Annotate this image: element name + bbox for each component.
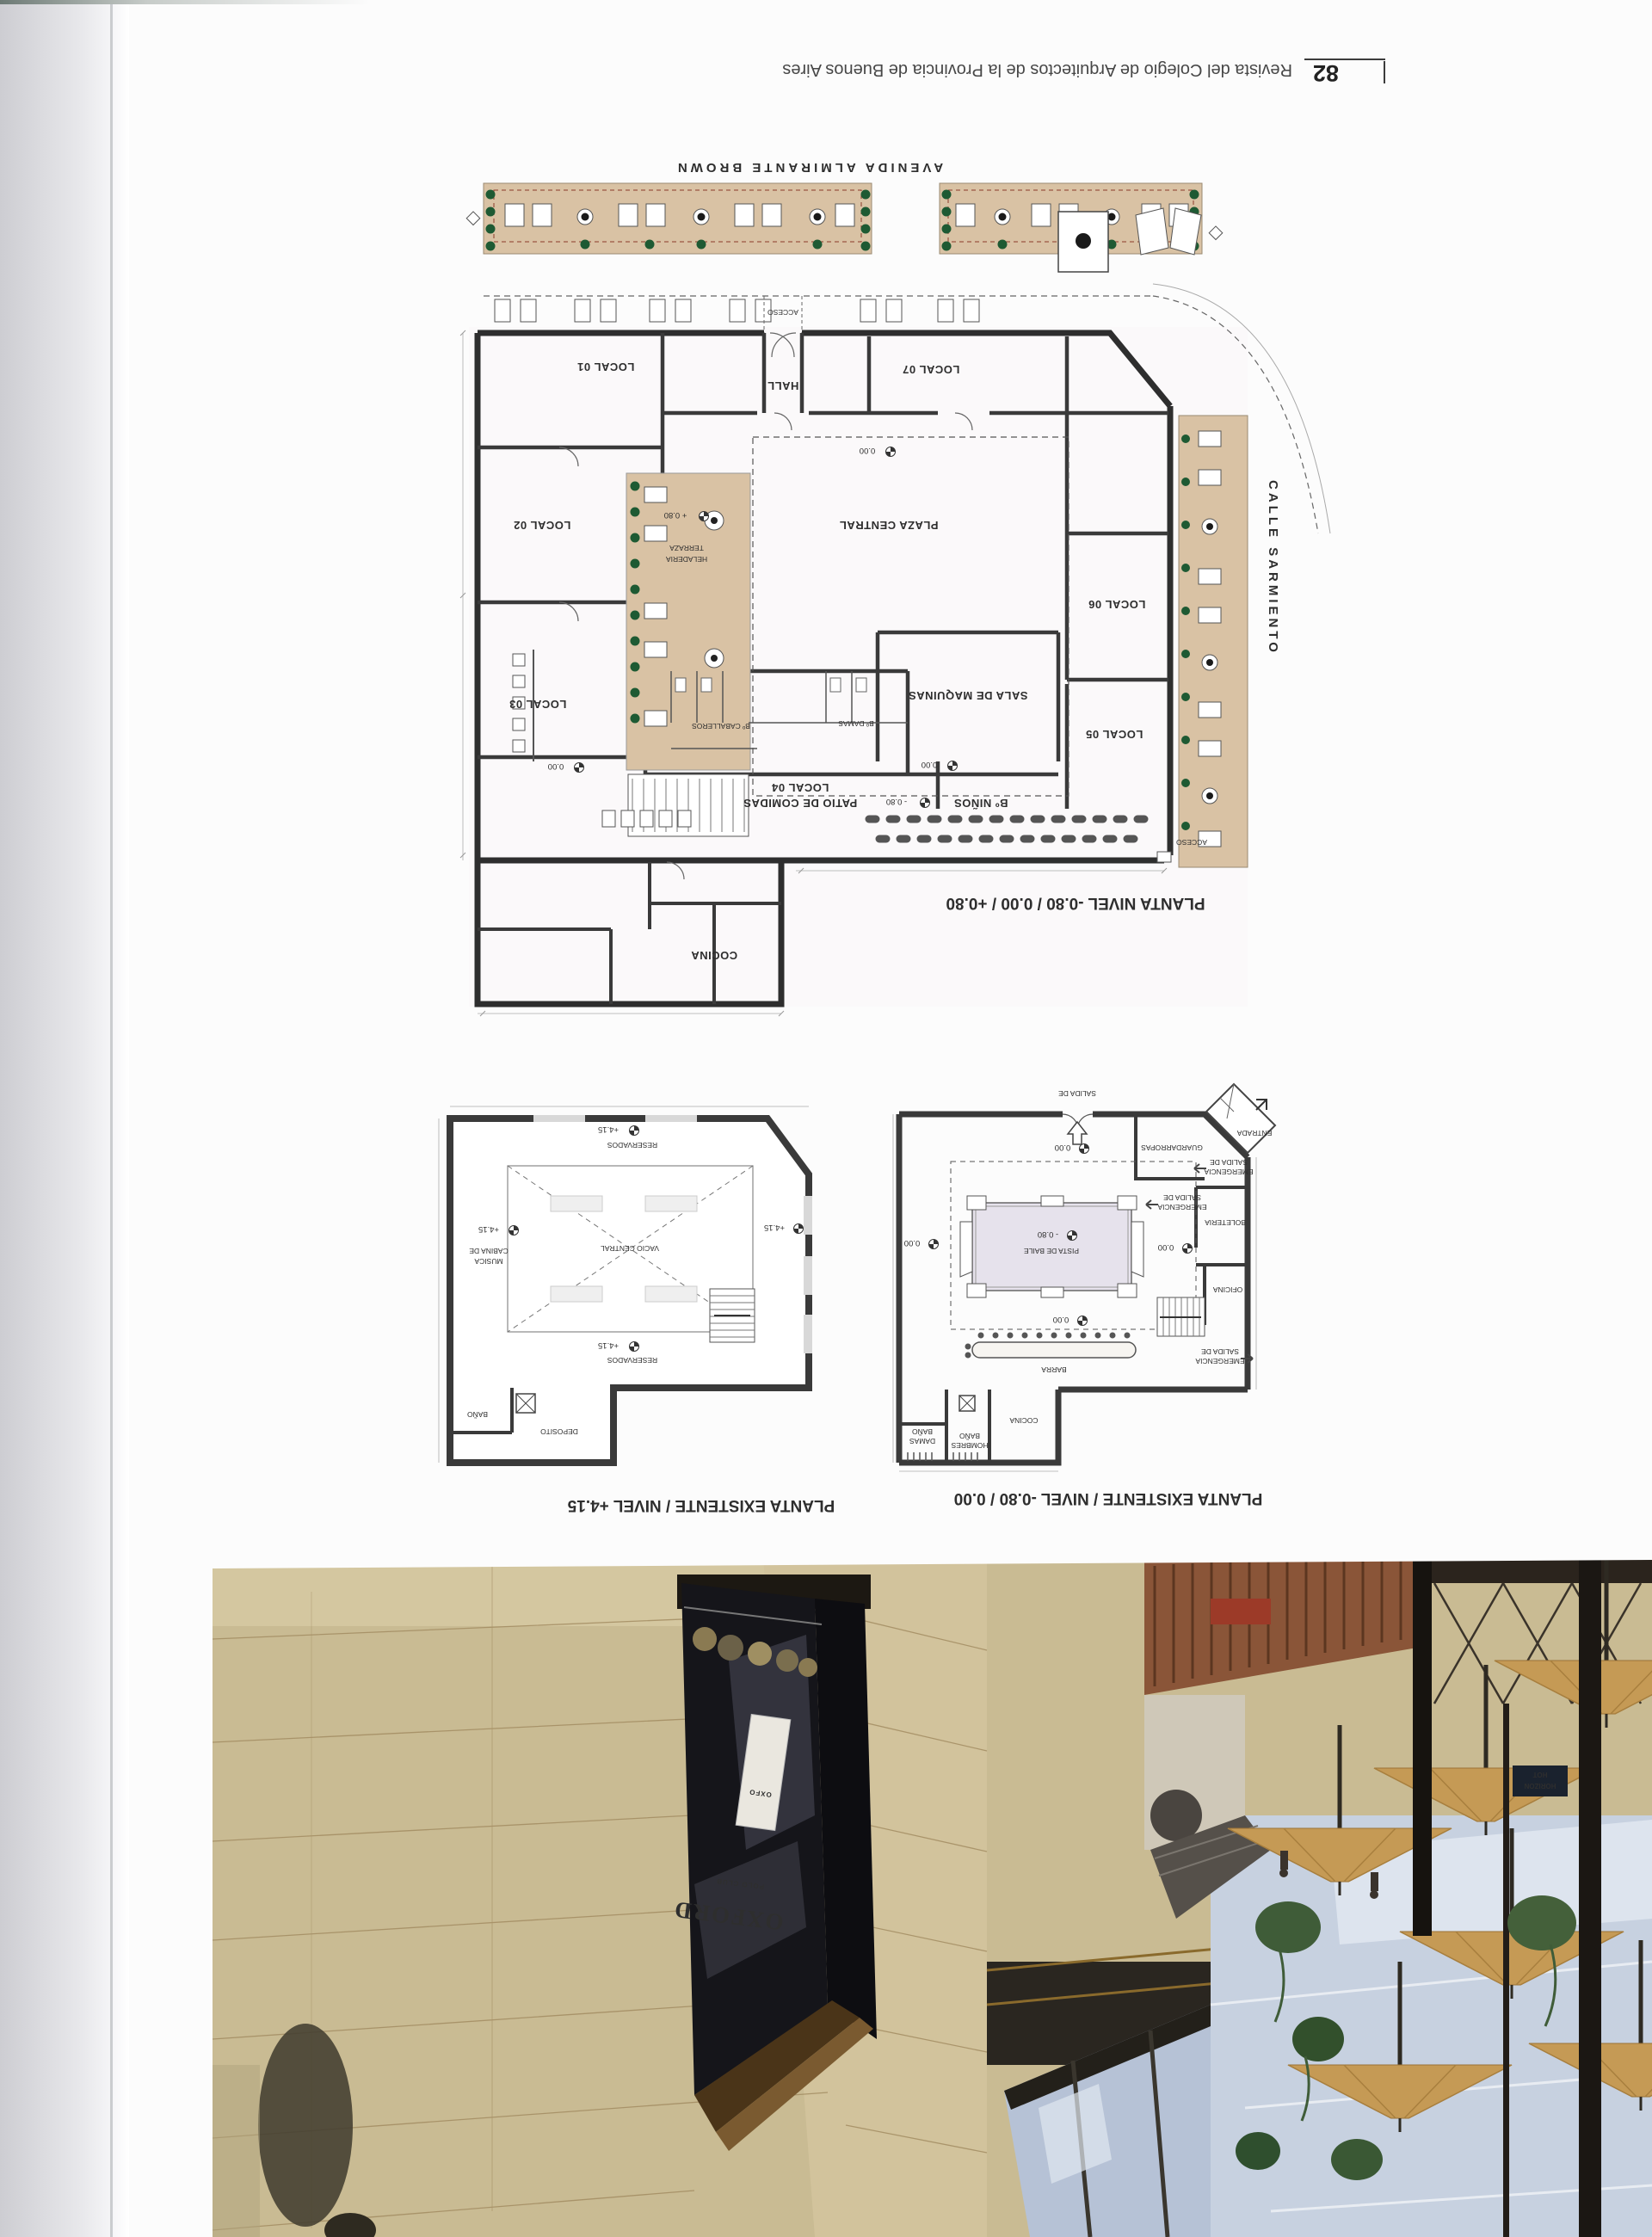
patio-bench-left	[602, 810, 691, 827]
room-label-local05: LOCAL 05	[1086, 728, 1143, 741]
street-label-sarmiento: CALLE SARMIENTO	[1266, 480, 1280, 656]
lower-window	[987, 1946, 1245, 2237]
bano-hombres-1: BAÑO	[959, 1432, 980, 1440]
pista-de-baile	[960, 1196, 1143, 1297]
room-label-local04: LOCAL 04	[771, 781, 829, 794]
post	[1579, 1557, 1601, 2237]
guardarropas-label: GUARDARROPAS	[1141, 1143, 1203, 1152]
page-number-rule: 82	[1304, 59, 1385, 84]
reservados-top: RESERVADOS	[607, 1141, 658, 1149]
salida-de-label: SALIDA DE	[1058, 1089, 1096, 1098]
stairs	[710, 1289, 755, 1342]
terrace-deck-1	[484, 183, 872, 254]
level-marker	[1068, 1231, 1077, 1241]
acceso-right-label: ACCESO	[1176, 838, 1207, 847]
em-box	[1157, 852, 1171, 862]
roof-beam	[1417, 1557, 1652, 1583]
level-marker	[575, 763, 584, 773]
page-number: 82	[1313, 61, 1339, 84]
person-silhouette	[1370, 1872, 1378, 1899]
barra-label: BARRA	[1041, 1365, 1067, 1374]
bano-damas-1: BAÑO	[912, 1427, 933, 1436]
pista-level: - 0.80	[1038, 1229, 1058, 1239]
plan-ground: ENTRADA SALIDA DE EMERGENCIA SALIDA DE G…	[886, 1075, 1291, 1510]
room-label-bano-ninos: Bº NIÑOS	[954, 797, 1008, 810]
red-banner	[1211, 1599, 1271, 1624]
page-footer: 82 Revista del Colegio de Arquitectos de…	[817, 59, 1385, 102]
cocina-label: COCINA	[1009, 1416, 1038, 1425]
up-arrow	[1068, 1122, 1087, 1144]
level-right: +4.15	[764, 1223, 785, 1232]
room-label-local02: LOCAL 02	[514, 519, 571, 532]
plan-main-caption: PLANTA NIVEL -0.80 / 0.00 / +0.80	[946, 894, 1205, 912]
level-000-left: 0.00	[548, 761, 564, 771]
page-edge-line	[110, 0, 113, 2237]
room-label-local07: LOCAL 07	[903, 363, 960, 376]
salida-emerg-mid-2: EMERGENCIA	[1157, 1203, 1206, 1211]
level-right: 0.00	[1158, 1242, 1174, 1252]
scanned-magazine-page: 82 Revista del Colegio de Arquitectos de…	[0, 0, 1652, 2237]
level-left: +4.15	[478, 1224, 499, 1234]
wall-shade-left	[213, 2065, 260, 2237]
level-marker	[630, 1342, 639, 1352]
magazine-title: Revista del Colegio de Arquitectos de la…	[782, 59, 1292, 81]
room-label-local01: LOCAL 01	[577, 361, 635, 373]
level-bottom: 0.00	[1053, 1315, 1069, 1324]
plan-upper: +4.15 RESERVADOS +4.15 CABINA DE MUSICA …	[430, 1093, 826, 1519]
plan-main: AVENIDA ALMIRANTE BROWN	[456, 155, 1334, 1020]
cabina-1: CABINA DE	[469, 1247, 509, 1255]
reservados-bottom: RESERVADOS	[607, 1356, 658, 1365]
shaft-box	[516, 1394, 535, 1413]
room-label-cocina: COCINA	[691, 949, 737, 962]
entrada-vestibule	[1206, 1084, 1275, 1153]
scan-top-edge	[0, 0, 370, 4]
room-label-local06: LOCAL 06	[1088, 598, 1146, 611]
level-000-hall: 0.00	[860, 446, 876, 455]
level-marker	[509, 1226, 519, 1236]
bano-hombres-2: HOMBRES	[951, 1441, 988, 1450]
level-marker	[886, 447, 896, 457]
room-label-bano-caballeros: Bº CABALLEROS	[692, 722, 750, 730]
cabina-2: MUSICA	[474, 1257, 502, 1266]
wall-shadow	[258, 2024, 353, 2227]
level-top: 0.00	[1055, 1143, 1071, 1152]
acceso-top-label: ACCESO	[767, 308, 798, 317]
hotel-sign-line1: HORIZON	[1524, 1782, 1556, 1790]
level-marker	[929, 1240, 939, 1249]
room-label-bano-damas: Bº DAMAS	[838, 719, 874, 728]
deposito-label: DEPOSITO	[540, 1427, 578, 1436]
entrada-label: ENTRADA	[1236, 1129, 1272, 1137]
level-marker	[1078, 1316, 1088, 1326]
level-plus080: + 0.80	[664, 510, 687, 520]
salida-emerg-tr-2: EMERGENCIA	[1204, 1168, 1253, 1176]
barra	[968, 1335, 1136, 1358]
salida-emerg-br-1: SALIDA DE	[1201, 1347, 1239, 1356]
level-000-right: 0.00	[922, 760, 938, 769]
hotel-sign: HORIZON HOT	[1513, 1766, 1568, 1796]
bano-label: BAÑO	[467, 1410, 488, 1419]
room-label-terraza2: HELADERIA	[666, 555, 708, 564]
level-minus080: - 0.80	[886, 797, 907, 806]
terrace-sarmiento	[1179, 416, 1248, 867]
level-marker	[630, 1126, 639, 1136]
hotel-sign-line2: HOT	[1532, 1771, 1547, 1778]
bano-damas-2: DAMAS	[909, 1437, 936, 1445]
salida-emerg-mid-1: SALIDA DE	[1163, 1193, 1201, 1202]
person-silhouette	[1279, 1851, 1288, 1877]
level-marker	[700, 512, 709, 521]
diamond-marker-left	[466, 212, 480, 225]
salida-emerg-br-2: EMERGENCIA	[1195, 1357, 1244, 1365]
page-number-tick	[1384, 61, 1385, 83]
post-thin	[1503, 1704, 1509, 2237]
level-marker	[1080, 1144, 1089, 1154]
room-label-local03: LOCAL 03	[509, 698, 567, 711]
stairs	[1157, 1297, 1205, 1336]
photo-storefront: OXFO POLO CLUB OXFORD	[213, 1557, 1652, 2237]
level-marker	[794, 1224, 804, 1234]
level-top: +4.15	[598, 1125, 619, 1134]
boleteria-label: BOLETERIA	[1205, 1218, 1246, 1227]
plan-ground-caption: PLANTA EXISTENTE / NIVEL -0.80 / 0.00	[954, 1489, 1263, 1507]
post	[1413, 1557, 1432, 1936]
level-marker	[948, 761, 958, 771]
room-label-hall: HALL	[767, 379, 799, 392]
exit-arrow-mid	[1146, 1200, 1158, 1209]
level-marker	[1183, 1244, 1193, 1254]
oficina-label: OFICINA	[1212, 1285, 1242, 1294]
shaft-box	[959, 1396, 975, 1411]
level-bottom: +4.15	[598, 1340, 619, 1350]
diamond-marker-right	[1209, 226, 1223, 240]
annex-walls	[899, 1390, 989, 1463]
level-marker	[921, 798, 930, 808]
salida-emerg-tr-1: SALIDA DE	[1210, 1158, 1248, 1167]
street-label-avenida: AVENIDA ALMIRANTE BROWN	[675, 160, 943, 175]
street-tables	[495, 299, 979, 322]
room-label-patio-comidas: PATIO DE COMIDAS	[743, 797, 857, 810]
room-label-terraza1: TERRAZA	[669, 544, 704, 552]
pista-label: PISTA DE BAILE	[1024, 1247, 1079, 1255]
level-left: 0.00	[904, 1238, 921, 1248]
room-label-sala-maquinas: SALA DE MAQUINAS	[909, 689, 1028, 702]
vacio-central: VACIO CENTRAL	[601, 1244, 659, 1253]
room-label-plaza: PLAZA CENTRAL	[839, 519, 938, 532]
plan-upper-caption: PLANTA EXISTENTE / NIVEL +4.15	[567, 1496, 835, 1514]
